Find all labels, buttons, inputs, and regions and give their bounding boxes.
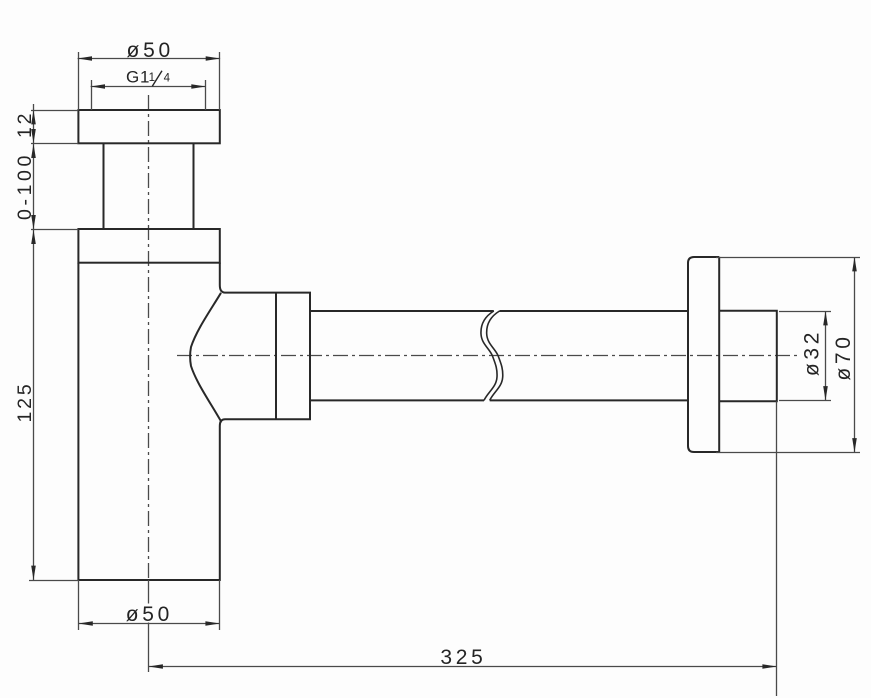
svg-text:125: 125 (14, 382, 36, 423)
svg-text:G1: G1 (126, 68, 150, 87)
svg-text:ø32: ø32 (801, 329, 824, 376)
svg-text:0-100: 0-100 (14, 152, 36, 220)
svg-text:12: 12 (14, 111, 36, 138)
svg-text:ø50: ø50 (127, 39, 174, 62)
svg-text:ø70: ø70 (832, 333, 855, 380)
svg-text:ø50: ø50 (126, 603, 173, 626)
svg-text:4: 4 (164, 73, 171, 85)
svg-text:325: 325 (440, 646, 486, 669)
